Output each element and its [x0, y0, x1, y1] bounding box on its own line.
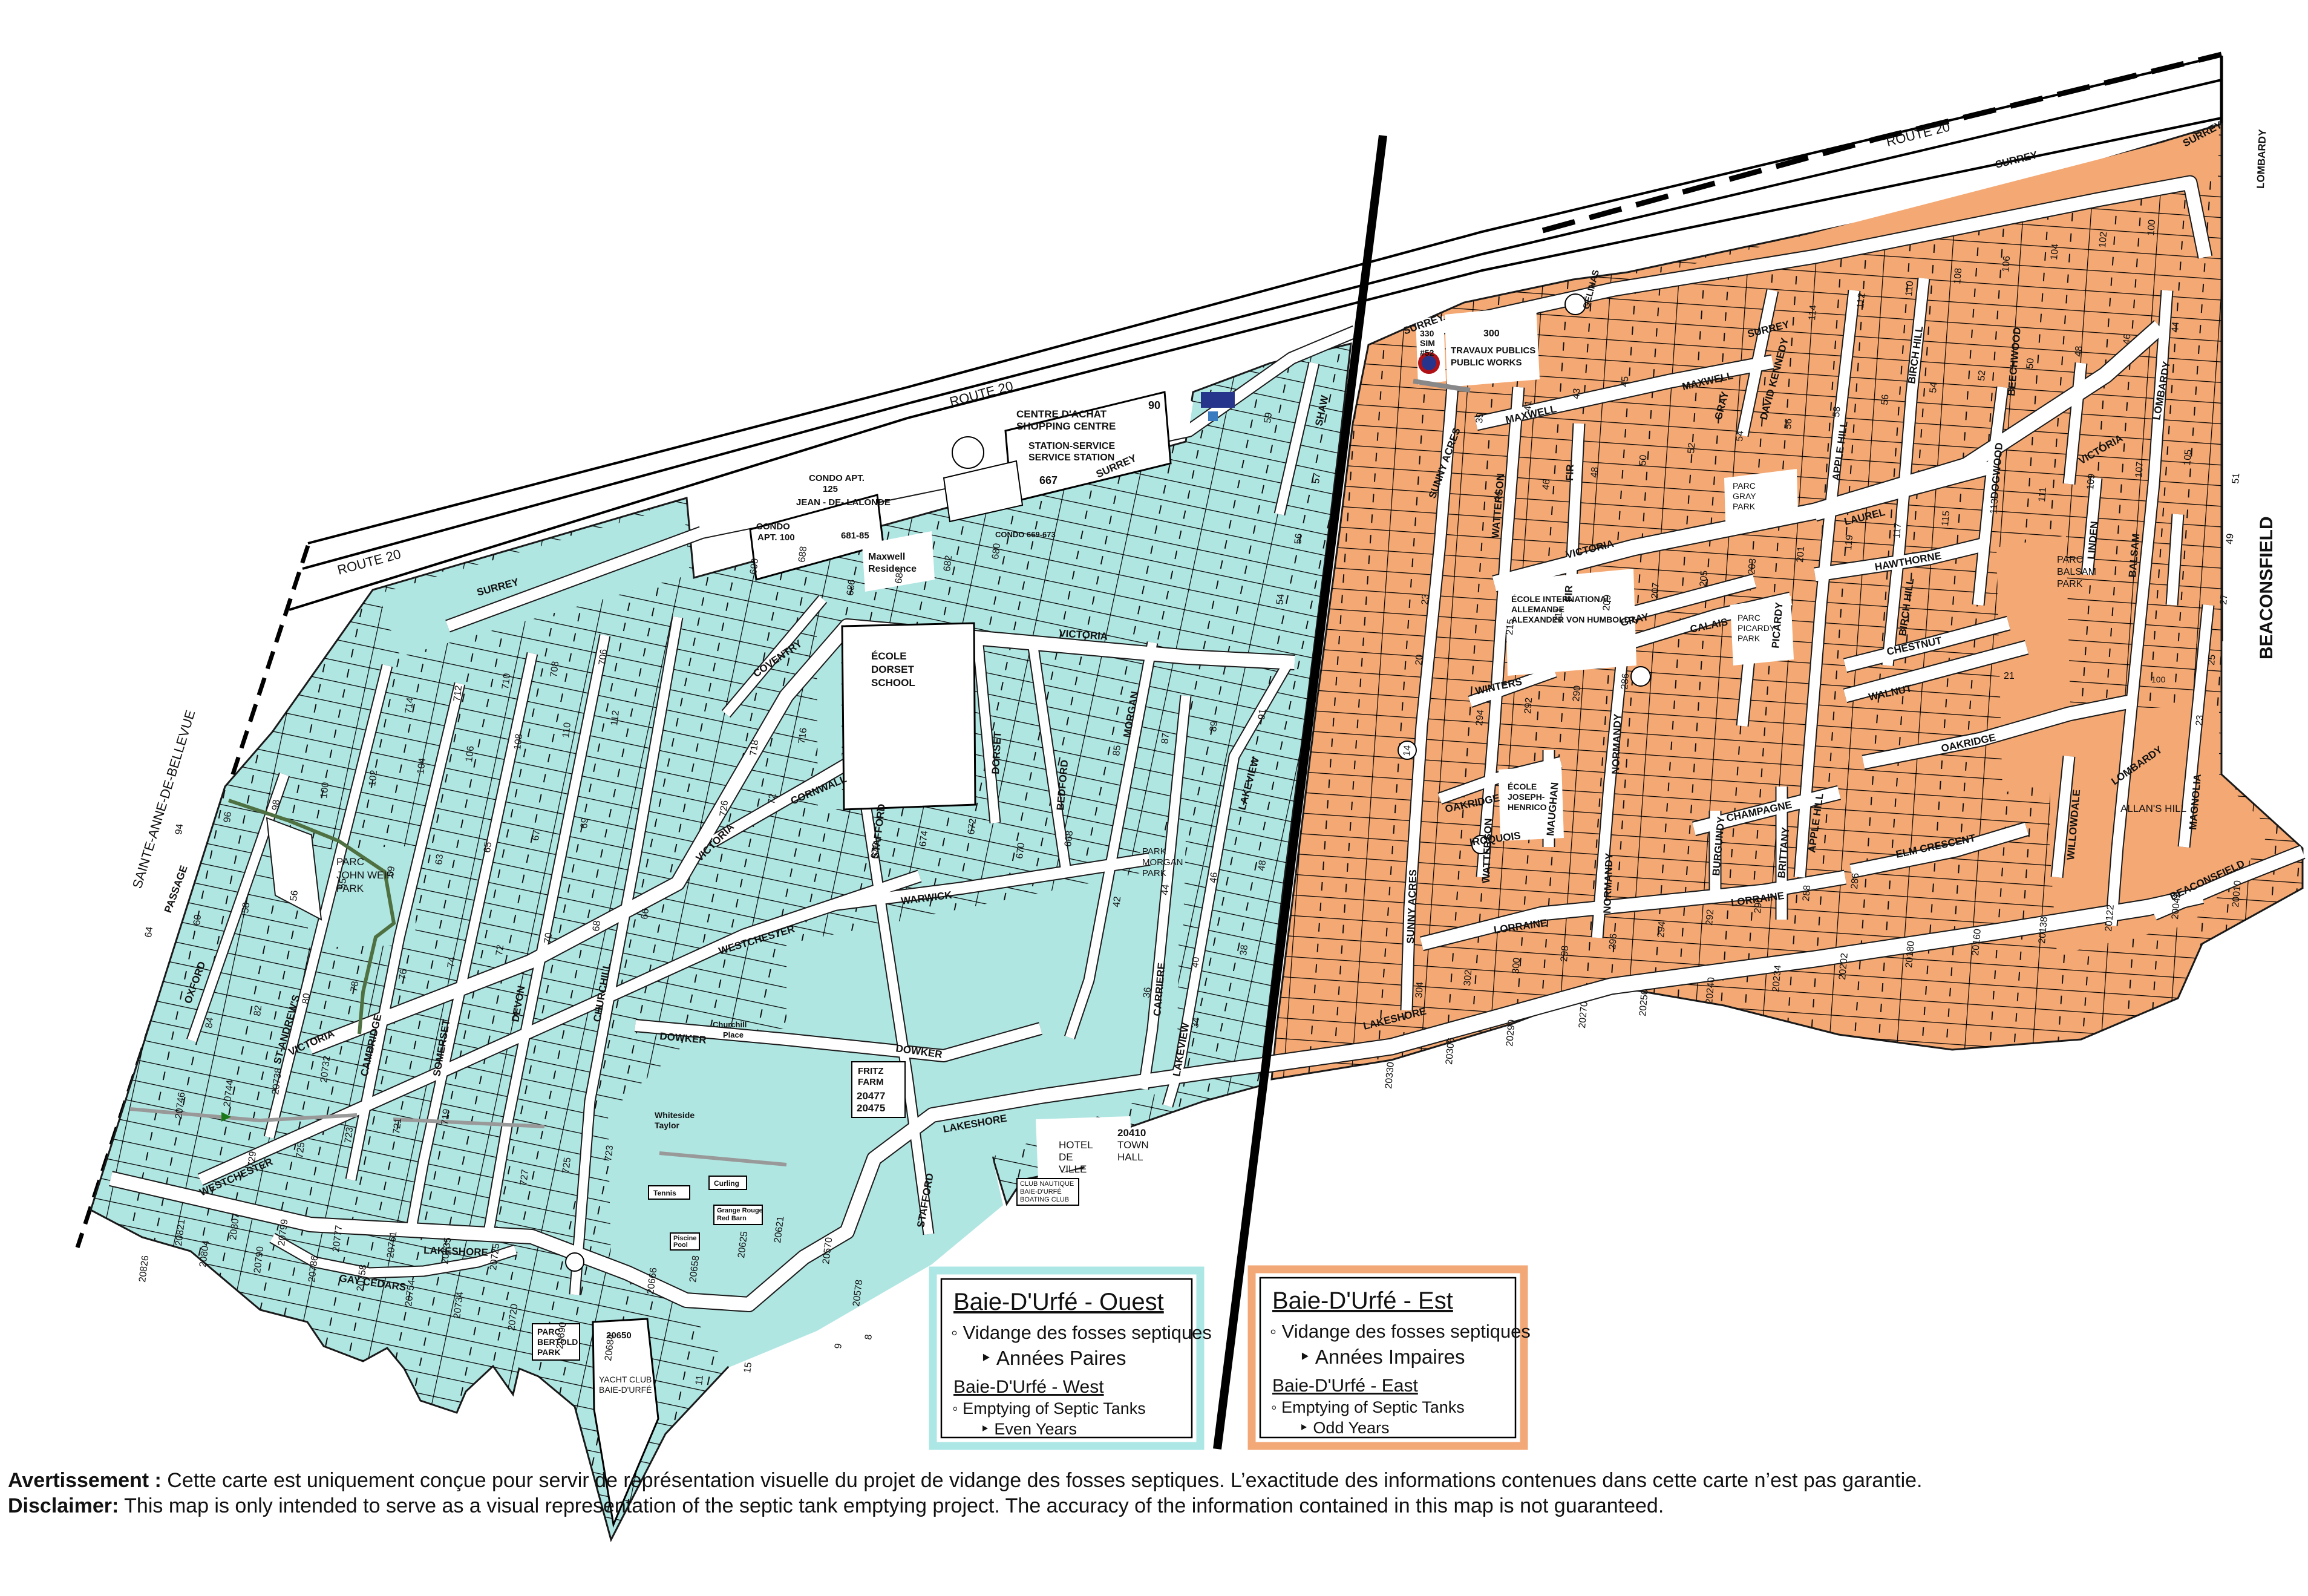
svg-text:106: 106 — [2001, 255, 2012, 272]
svg-text:300: 300 — [1483, 329, 1500, 339]
svg-text:89: 89 — [1208, 721, 1220, 733]
svg-text:Tennis: Tennis — [653, 1189, 676, 1197]
svg-text:52: 52 — [1976, 370, 1987, 381]
svg-text:688: 688 — [797, 546, 809, 563]
svg-text:74: 74 — [446, 957, 457, 969]
svg-text:44: 44 — [1492, 491, 1503, 502]
svg-text:46: 46 — [2122, 333, 2133, 345]
svg-text:50: 50 — [1638, 454, 1649, 466]
svg-text:69: 69 — [579, 817, 590, 829]
svg-text:Taylor: Taylor — [655, 1120, 680, 1130]
svg-text:294: 294 — [1474, 709, 1486, 726]
svg-text:Curling: Curling — [714, 1179, 739, 1188]
svg-text:45: 45 — [1620, 376, 1630, 387]
svg-text:723: 723 — [603, 1145, 615, 1162]
svg-text:FRITZ: FRITZ — [858, 1066, 884, 1076]
svg-text:PICARDY: PICARDY — [1738, 623, 1776, 633]
svg-text:78: 78 — [349, 981, 361, 993]
svg-text:58: 58 — [1831, 406, 1842, 417]
svg-text:FARM: FARM — [858, 1077, 884, 1087]
svg-text:714: 714 — [404, 697, 416, 715]
svg-text:66: 66 — [639, 908, 651, 920]
svg-text:115: 115 — [1940, 510, 1952, 526]
svg-text:HALL: HALL — [1117, 1151, 1143, 1163]
svg-text:55: 55 — [337, 878, 348, 890]
svg-text:52: 52 — [1686, 442, 1697, 454]
svg-text:NORMANDY: NORMANDY — [1601, 852, 1615, 914]
svg-text:21: 21 — [2004, 671, 2015, 681]
svg-text:110: 110 — [561, 722, 573, 738]
svg-text:20306: 20306 — [1444, 1037, 1457, 1065]
svg-text:718: 718 — [748, 739, 760, 757]
svg-text:PARC: PARC — [336, 856, 364, 868]
svg-text:44: 44 — [1160, 884, 1171, 896]
svg-text:PARC: PARC — [1738, 613, 1760, 623]
svg-text:48: 48 — [1257, 860, 1268, 872]
svg-text:Grange Rouge: Grange Rouge — [717, 1207, 763, 1214]
svg-text:Baie-D'Urfé - Ouest: Baie-D'Urfé - Ouest — [953, 1289, 1164, 1315]
svg-text:85: 85 — [1111, 745, 1123, 757]
svg-text:◦ Vidange des fosses septiques: ◦ Vidange des fosses septiques — [951, 1322, 1212, 1343]
svg-text:YACHT CLUB: YACHT CLUB — [599, 1375, 652, 1384]
svg-text:113: 113 — [1989, 498, 2000, 514]
svg-text:‣ Années Paires: ‣ Années Paires — [980, 1347, 1126, 1369]
svg-text:292: 292 — [1523, 697, 1534, 714]
svg-text:721: 721 — [391, 1117, 404, 1135]
svg-text:20290: 20290 — [1505, 1019, 1517, 1047]
svg-text:48: 48 — [1589, 466, 1600, 478]
svg-text:SURREY: SURREY — [1994, 149, 2039, 171]
svg-text:94: 94 — [174, 823, 185, 836]
svg-text:27: 27 — [2218, 594, 2229, 605]
svg-text:682: 682 — [942, 555, 954, 572]
svg-text:68: 68 — [591, 920, 603, 932]
svg-text:ÉCOLE INTERNATIONAL: ÉCOLE INTERNATIONAL — [1511, 594, 1612, 604]
svg-text:330: 330 — [1420, 329, 1434, 338]
svg-text:56: 56 — [1880, 394, 1891, 405]
svg-text:CENTRE D'ACHAT: CENTRE D'ACHAT — [1016, 408, 1107, 420]
svg-text:36: 36 — [1142, 987, 1153, 999]
svg-text:BAIE-D'URFÉ: BAIE-D'URFÉ — [1020, 1188, 1062, 1195]
svg-text:726: 726 — [718, 800, 730, 817]
svg-text:44: 44 — [2170, 321, 2181, 333]
svg-text:80: 80 — [301, 993, 312, 1005]
svg-text:‣ Even Years: ‣ Even Years — [980, 1420, 1077, 1438]
svg-text:PARC: PARC — [2057, 555, 2083, 565]
svg-text:38: 38 — [1238, 944, 1250, 957]
svg-text:Baie-D'Urfé - East: Baie-D'Urfé - East — [1272, 1376, 1418, 1396]
svg-text:HENRICO: HENRICO — [1508, 802, 1547, 812]
svg-text:41: 41 — [1523, 400, 1534, 411]
svg-text:300: 300 — [1511, 957, 1522, 974]
svg-text:65: 65 — [482, 842, 494, 854]
svg-text:72: 72 — [494, 944, 506, 957]
svg-text:117: 117 — [1892, 522, 1903, 538]
svg-text:67: 67 — [531, 829, 542, 842]
svg-text:667: 667 — [1039, 474, 1058, 486]
svg-text:Disclaimer: This map is only i: Disclaimer: This map is only intended to… — [8, 1494, 1664, 1517]
svg-text:ÉCOLE: ÉCOLE — [871, 650, 907, 662]
svg-text:40: 40 — [1190, 957, 1201, 969]
svg-text:96: 96 — [222, 811, 234, 823]
svg-text:716: 716 — [797, 727, 809, 745]
svg-text:288: 288 — [1801, 885, 1813, 901]
svg-text:54: 54 — [1275, 594, 1286, 606]
svg-text:106: 106 — [464, 745, 476, 763]
svg-text:LOMBARDY: LOMBARDY — [2255, 129, 2268, 189]
svg-text:MORGAN: MORGAN — [1142, 857, 1183, 868]
svg-text:112: 112 — [1855, 292, 1867, 309]
svg-text:84: 84 — [204, 1017, 215, 1029]
svg-text:712: 712 — [452, 685, 464, 702]
svg-text:670: 670 — [1015, 842, 1027, 860]
svg-text:286: 286 — [1849, 872, 1861, 889]
svg-text:725: 725 — [295, 1142, 307, 1159]
svg-text:Churchill: Churchill — [713, 1020, 747, 1029]
svg-text:23: 23 — [2194, 715, 2205, 726]
svg-text:CONDO APT.: CONDO APT. — [809, 473, 865, 483]
svg-text:ROUTE 20: ROUTE 20 — [948, 378, 1015, 410]
svg-text:DORSET: DORSET — [990, 731, 1004, 774]
svg-text:58: 58 — [240, 902, 252, 914]
svg-text:SERVICE STATION: SERVICE STATION — [1028, 453, 1114, 463]
svg-text:104: 104 — [2049, 243, 2061, 260]
svg-text:59: 59 — [1263, 412, 1274, 424]
svg-text:211: 211 — [1553, 607, 1564, 623]
svg-text:112: 112 — [609, 710, 621, 726]
svg-text:ALEXANDER VON HUMBOLDT: ALEXANDER VON HUMBOLDT — [1511, 615, 1636, 624]
svg-text:91: 91 — [1257, 708, 1268, 721]
svg-text:TRAVAUX PUBLICS: TRAVAUX PUBLICS — [1451, 345, 1535, 356]
svg-text:‣ Odd Years: ‣ Odd Years — [1299, 1419, 1390, 1437]
svg-text:PASSAGE: PASSAGE — [162, 864, 190, 914]
svg-text:20270: 20270 — [1577, 1001, 1590, 1029]
svg-text:STATION-SERVICE: STATION-SERVICE — [1028, 441, 1115, 451]
svg-text:14: 14 — [1402, 745, 1413, 756]
svg-text:56: 56 — [1293, 533, 1304, 545]
svg-text:GRAY: GRAY — [1733, 491, 1756, 501]
svg-text:76: 76 — [397, 969, 409, 981]
svg-text:107: 107 — [2134, 461, 2145, 478]
svg-text:209: 209 — [1601, 594, 1613, 611]
svg-text:725: 725 — [561, 1157, 573, 1174]
svg-text:JOSEPH-: JOSEPH- — [1508, 792, 1545, 802]
svg-text:‣ Années Impaires: ‣ Années Impaires — [1299, 1346, 1465, 1368]
svg-text:70: 70 — [543, 932, 554, 944]
svg-text:125: 125 — [823, 484, 838, 494]
svg-text:Maxwell: Maxwell — [868, 552, 905, 562]
svg-text:110: 110 — [1904, 280, 1915, 296]
svg-text:20477: 20477 — [857, 1090, 885, 1102]
svg-text:34: 34 — [1190, 1017, 1201, 1029]
svg-text:668: 668 — [1063, 830, 1075, 848]
svg-text:HOTEL: HOTEL — [1059, 1139, 1093, 1151]
svg-text:723: 723 — [343, 1127, 355, 1144]
svg-text:298: 298 — [1559, 945, 1571, 962]
svg-text:100: 100 — [319, 782, 331, 799]
svg-text:SCHOOL: SCHOOL — [871, 677, 915, 688]
svg-text:23: 23 — [1420, 594, 1431, 605]
svg-text:JEAN - DE- LALONDE: JEAN - DE- LALONDE — [796, 497, 891, 508]
svg-text:60: 60 — [192, 914, 203, 926]
svg-text:290: 290 — [1571, 685, 1583, 702]
svg-text:302: 302 — [1462, 969, 1474, 986]
svg-text:BAIE-D'URFÉ: BAIE-D'URFÉ — [599, 1385, 652, 1395]
svg-text:111: 111 — [2037, 487, 2048, 503]
svg-text:SHOPPING CENTRE: SHOPPING CENTRE — [1016, 420, 1116, 432]
svg-text:Whiteside: Whiteside — [655, 1110, 695, 1120]
svg-text:25: 25 — [2206, 654, 2217, 666]
svg-text:CONDO: CONDO — [756, 522, 790, 532]
svg-text:◦ Emptying of Septic Tanks: ◦ Emptying of Septic Tanks — [952, 1399, 1146, 1418]
svg-text:APT. 100: APT. 100 — [757, 532, 795, 543]
svg-text:PUBLIC WORKS: PUBLIC WORKS — [1451, 358, 1522, 368]
svg-text:◦ Vidange des fosses septiques: ◦ Vidange des fosses septiques — [1270, 1321, 1531, 1342]
svg-text:108: 108 — [1952, 267, 1964, 284]
svg-text:203: 203 — [1747, 558, 1758, 575]
svg-text:102: 102 — [367, 770, 379, 787]
svg-text:PARK: PARK — [1142, 846, 1166, 857]
svg-text:304: 304 — [1414, 981, 1425, 998]
svg-text:Red Barn: Red Barn — [717, 1215, 747, 1222]
svg-text:BEACONSFIELD: BEACONSFIELD — [2257, 516, 2277, 659]
svg-text:719: 719 — [440, 1108, 452, 1126]
svg-text:VILLE: VILLE — [1059, 1163, 1087, 1175]
svg-text:49: 49 — [2225, 533, 2235, 545]
svg-text:90: 90 — [1148, 399, 1160, 411]
svg-text:ALLAN'S HILL: ALLAN'S HILL — [2120, 803, 2186, 814]
svg-text:686: 686 — [845, 579, 857, 597]
svg-text:PARC: PARC — [1733, 481, 1756, 491]
svg-text:64: 64 — [143, 926, 155, 938]
svg-text:SIM: SIM — [1420, 338, 1435, 348]
svg-text:109: 109 — [2085, 473, 2097, 490]
svg-text:NORMANDY: NORMANDY — [1610, 713, 1624, 774]
svg-text:100: 100 — [2151, 675, 2166, 684]
svg-text:CLUB NAUTIQUE: CLUB NAUTIQUE — [1020, 1180, 1074, 1188]
svg-text:Baie-D'Urfé - Est: Baie-D'Urfé - Est — [1272, 1287, 1453, 1314]
svg-text:680: 680 — [990, 543, 1002, 560]
svg-text:SAINTE-ANNE-DE-BELLEVUE: SAINTE-ANNE-DE-BELLEVUE — [129, 708, 198, 891]
svg-text:PARK: PARK — [1733, 502, 1756, 511]
svg-text:8: 8 — [863, 1333, 874, 1340]
svg-text:9: 9 — [833, 1343, 844, 1349]
svg-text:87: 87 — [1160, 733, 1171, 745]
svg-text:Avertissement : Cette carte es: Avertissement : Cette carte est uniqueme… — [8, 1469, 1922, 1492]
svg-text:51: 51 — [2231, 473, 2241, 484]
svg-text:Pool: Pool — [673, 1241, 688, 1249]
svg-text:Residence: Residence — [868, 564, 917, 574]
svg-text:105: 105 — [2182, 449, 2194, 466]
svg-text:LAKESHORE: LAKESHORE — [423, 1244, 488, 1258]
svg-text:DORSET: DORSET — [871, 664, 914, 675]
svg-text:672: 672 — [966, 818, 978, 836]
svg-text:FIR: FIR — [1564, 464, 1576, 481]
svg-text:63: 63 — [434, 854, 445, 866]
svg-text:100: 100 — [2146, 219, 2157, 236]
svg-text:ÉCOLE: ÉCOLE — [1508, 782, 1537, 791]
svg-text:54: 54 — [1734, 430, 1745, 442]
svg-text:20330: 20330 — [1384, 1061, 1396, 1089]
svg-text:98: 98 — [270, 799, 282, 811]
svg-text:20475: 20475 — [857, 1102, 885, 1114]
svg-text:56: 56 — [1783, 418, 1794, 430]
svg-text:TOWN: TOWN — [1117, 1139, 1149, 1151]
svg-text:46: 46 — [1208, 872, 1220, 884]
svg-text:296: 296 — [1607, 933, 1619, 950]
svg-text:102: 102 — [2097, 231, 2109, 248]
svg-text:292: 292 — [1704, 909, 1716, 926]
svg-text:56: 56 — [289, 890, 300, 902]
svg-text:46: 46 — [1541, 479, 1552, 490]
svg-text:43: 43 — [1571, 388, 1582, 399]
svg-text:PARK: PARK — [2057, 579, 2083, 589]
svg-text:215: 215 — [1505, 618, 1516, 635]
svg-text:Baie-D'Urfé - West: Baie-D'Urfé - West — [953, 1377, 1104, 1397]
svg-text:15: 15 — [742, 1362, 754, 1374]
svg-text:727: 727 — [518, 1169, 531, 1186]
svg-text:59: 59 — [385, 866, 397, 878]
svg-text:50: 50 — [2025, 358, 2036, 369]
svg-text:294: 294 — [1656, 921, 1667, 938]
svg-text:42: 42 — [1111, 896, 1123, 908]
svg-text:286: 286 — [1620, 673, 1631, 690]
svg-text:201: 201 — [1795, 546, 1806, 563]
svg-text:684: 684 — [894, 567, 906, 584]
svg-text:708: 708 — [549, 661, 561, 678]
svg-text:729: 729 — [246, 1151, 258, 1168]
svg-text:290: 290 — [1753, 897, 1764, 914]
svg-text:20: 20 — [1414, 654, 1425, 666]
svg-text:57: 57 — [1311, 473, 1322, 485]
svg-text:20410: 20410 — [1117, 1127, 1146, 1139]
svg-text:82: 82 — [252, 1005, 264, 1017]
svg-text:72: 72 — [767, 793, 778, 805]
svg-text:710: 710 — [500, 673, 512, 690]
svg-text:706: 706 — [597, 649, 609, 666]
svg-text:20250: 20250 — [1638, 989, 1650, 1016]
svg-text:CONDO 669-673: CONDO 669-673 — [995, 530, 1056, 539]
svg-text:11: 11 — [694, 1375, 705, 1386]
svg-text:676: 676 — [869, 842, 881, 860]
svg-text:20826: 20826 — [137, 1255, 151, 1283]
svg-text:674: 674 — [918, 830, 930, 848]
svg-text:39: 39 — [1474, 412, 1485, 424]
svg-text:205: 205 — [1698, 570, 1710, 587]
svg-text:119: 119 — [1843, 534, 1855, 551]
svg-text:108: 108 — [512, 733, 525, 751]
svg-text:WATTERSON: WATTERSON — [1480, 818, 1494, 883]
svg-text:207: 207 — [1650, 582, 1661, 599]
svg-text:BALSAM: BALSAM — [2057, 567, 2096, 577]
svg-text:◦ Emptying of Septic Tanks: ◦ Emptying of Septic Tanks — [1271, 1398, 1465, 1416]
svg-text:Place: Place — [723, 1030, 744, 1039]
svg-text:681-85: 681-85 — [841, 531, 869, 541]
svg-text:BOATING CLUB: BOATING CLUB — [1020, 1196, 1069, 1203]
svg-text:#52: #52 — [1420, 348, 1434, 358]
svg-text:104: 104 — [416, 757, 428, 775]
svg-text:DE: DE — [1059, 1151, 1073, 1163]
svg-text:PARK: PARK — [1738, 633, 1760, 643]
svg-text:PARK: PARK — [1142, 868, 1166, 878]
svg-text:114: 114 — [1807, 304, 1819, 321]
svg-text:54: 54 — [1928, 382, 1939, 393]
svg-text:690: 690 — [748, 558, 760, 575]
svg-text:48: 48 — [2073, 345, 2084, 357]
